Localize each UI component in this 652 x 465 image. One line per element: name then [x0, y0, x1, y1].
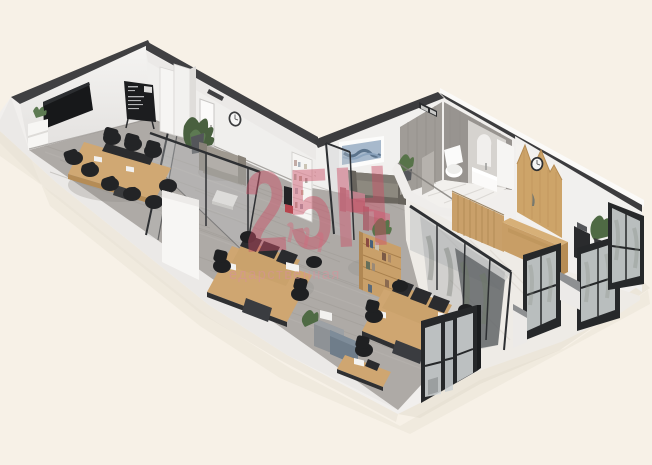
- svg-text:едарственная: едарственная: [229, 267, 341, 283]
- svg-text:25Н: 25Н: [241, 140, 395, 276]
